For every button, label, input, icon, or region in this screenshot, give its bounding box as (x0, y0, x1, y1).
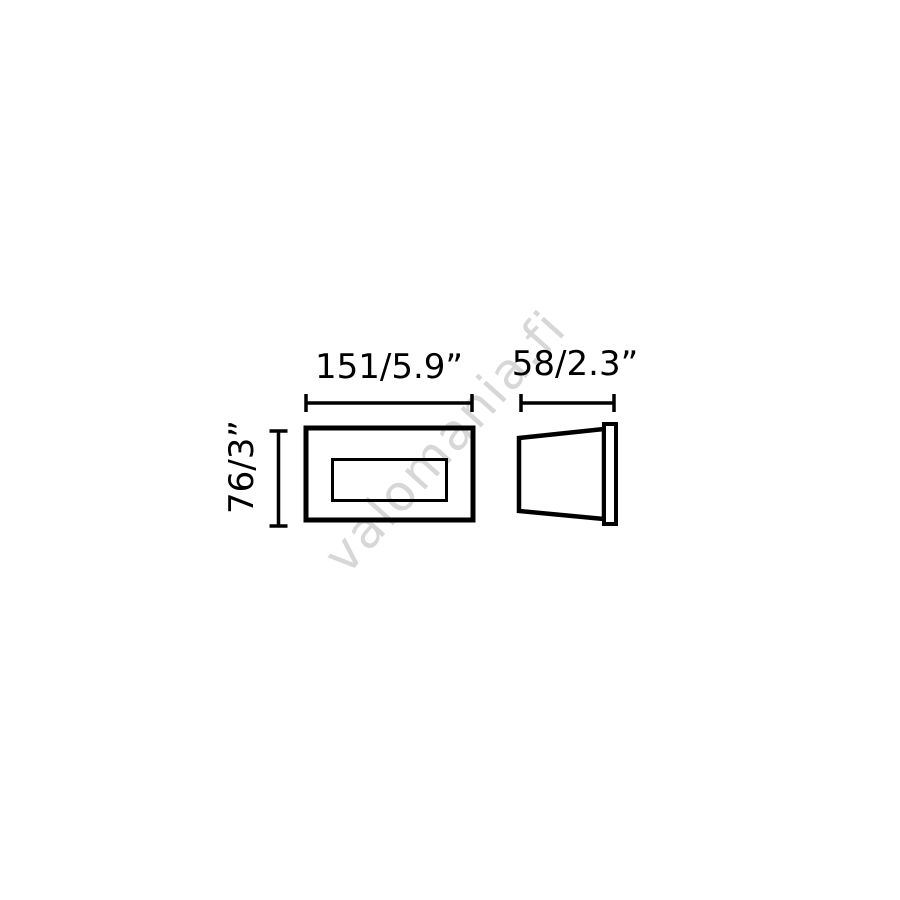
height-dimension-line (270, 431, 288, 526)
side-view (519, 394, 616, 524)
side-view-faceplate (604, 424, 616, 524)
width-dimension-line (306, 394, 472, 412)
front-view (270, 394, 474, 526)
height-dimension-label: 76/3” (222, 420, 262, 514)
depth-dimension-line (521, 394, 614, 412)
front-view-aperture (333, 460, 447, 501)
side-view-body (519, 429, 604, 519)
depth-dimension-label: 58/2.3” (512, 344, 638, 384)
dimension-drawing-svg (0, 0, 900, 900)
technical-drawing: valomania.fi 151/5.9” 58/2.3” 76/3” (0, 0, 900, 900)
width-dimension-label: 151/5.9” (315, 347, 463, 387)
